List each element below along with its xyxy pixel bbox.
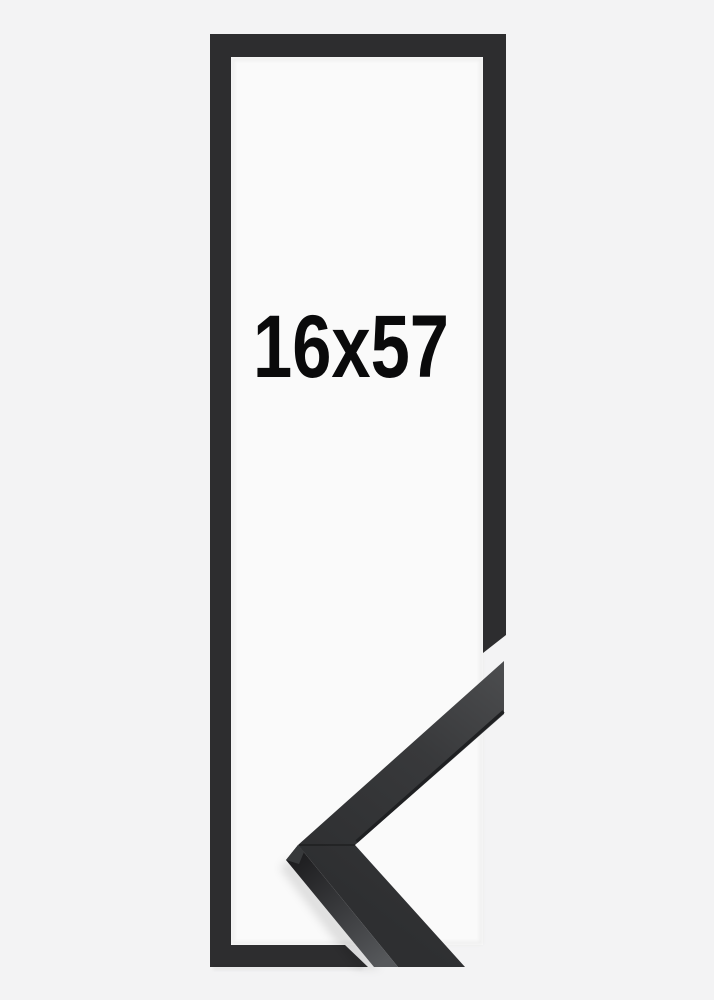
product-image: 16x57 (0, 0, 714, 1000)
size-label: 16x57 (253, 296, 449, 396)
frame-bottom-shadow (213, 966, 363, 970)
